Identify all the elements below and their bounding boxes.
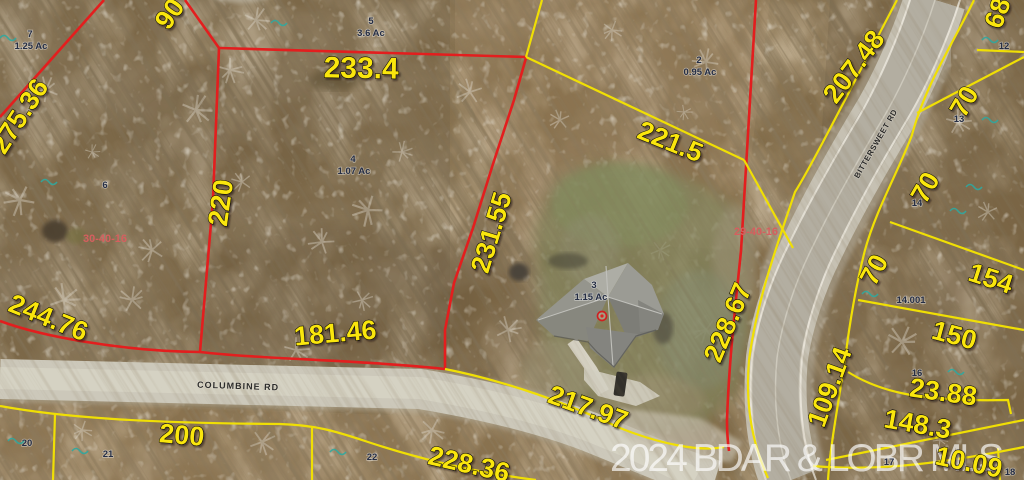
svg-text:1.15 Ac: 1.15 Ac: [575, 292, 608, 303]
svg-text:5: 5: [368, 16, 374, 27]
svg-text:12: 12: [999, 41, 1010, 52]
svg-text:22: 22: [367, 452, 378, 463]
svg-text:14.001: 14.001: [896, 295, 926, 306]
svg-text:16: 16: [912, 368, 923, 379]
svg-text:30-40-16: 30-40-16: [83, 233, 127, 245]
svg-text:21: 21: [103, 449, 114, 460]
svg-text:29-40-16: 29-40-16: [734, 226, 778, 238]
svg-text:3: 3: [591, 280, 596, 291]
svg-text:220: 220: [202, 177, 239, 228]
svg-text:1.07 Ac: 1.07 Ac: [338, 166, 371, 177]
svg-text:200: 200: [158, 418, 206, 452]
svg-text:17: 17: [884, 457, 895, 468]
svg-text:1.25 Ac: 1.25 Ac: [15, 41, 48, 52]
svg-text:7: 7: [27, 29, 32, 40]
svg-text:4: 4: [350, 154, 356, 165]
svg-text:18: 18: [1005, 467, 1016, 478]
svg-text:6: 6: [102, 180, 107, 191]
svg-text:233.4: 233.4: [323, 51, 399, 85]
svg-text:13: 13: [954, 114, 965, 125]
svg-text:0.95 Ac: 0.95 Ac: [684, 67, 717, 78]
svg-text:3.6 Ac: 3.6 Ac: [357, 28, 385, 39]
svg-text:2: 2: [696, 55, 701, 66]
svg-text:14: 14: [912, 198, 923, 209]
svg-text:20: 20: [22, 438, 33, 449]
